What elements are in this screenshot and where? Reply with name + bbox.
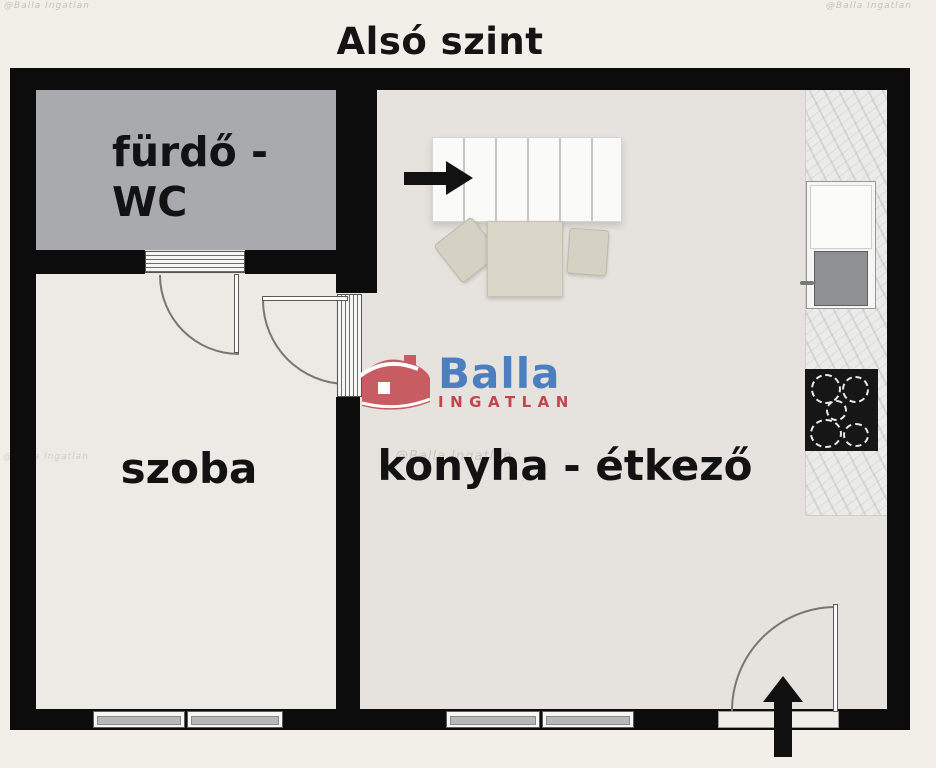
window	[446, 711, 540, 728]
stairs-direction-arrow-icon	[404, 172, 448, 185]
partition-wall-lower	[336, 397, 360, 710]
agency-logo: Balla INGATLAN	[360, 352, 575, 416]
entrance-door-leaf	[833, 604, 838, 712]
burner-icon	[842, 376, 869, 403]
entrance-arrow-icon	[774, 700, 792, 757]
burner-icon	[826, 400, 847, 421]
wall-left	[10, 68, 36, 730]
window	[542, 711, 634, 728]
window-glass	[191, 716, 279, 725]
entrance-arrow-icon	[763, 676, 803, 702]
wall-top	[10, 68, 910, 90]
kitchen-door-frame	[337, 294, 362, 397]
bathroom-label-line1: fürdő -	[112, 128, 268, 176]
room-label: szoba	[60, 444, 318, 493]
house-icon	[360, 352, 432, 416]
window-glass	[546, 716, 630, 725]
sink-basin	[814, 251, 868, 306]
chair	[566, 228, 609, 277]
window	[187, 711, 283, 728]
bathroom-south-wall	[10, 250, 145, 274]
stairs-direction-arrow-icon	[446, 161, 473, 195]
burner-icon	[810, 419, 842, 448]
watermark: @Balla Ingatlan	[4, 1, 90, 11]
bathroom-label-line2: WC	[112, 178, 187, 226]
faucet-icon	[800, 281, 814, 285]
bathroom-door-leaf	[234, 274, 239, 353]
window-glass	[97, 716, 181, 725]
kitchen-door-leaf	[262, 296, 348, 301]
kitchen-label: konyha - étkező	[375, 441, 755, 490]
bathroom-door-frame	[145, 251, 245, 273]
burner-icon	[843, 423, 869, 447]
bathroom-south-wall	[245, 250, 377, 274]
floor-plan: Alsó szint fürdő - WC s	[0, 0, 936, 768]
watermark: @Balla Ingatlan	[826, 1, 912, 11]
window	[93, 711, 185, 728]
page-title: Alsó szint	[140, 20, 740, 63]
sink-drainer	[810, 185, 872, 249]
wall-right	[887, 68, 910, 730]
logo-brand-text: Balla	[438, 352, 575, 396]
window-glass	[450, 716, 536, 725]
dining-table	[487, 221, 563, 297]
logo-subtitle-text: INGATLAN	[438, 393, 575, 411]
stove-cooktop	[805, 369, 878, 451]
